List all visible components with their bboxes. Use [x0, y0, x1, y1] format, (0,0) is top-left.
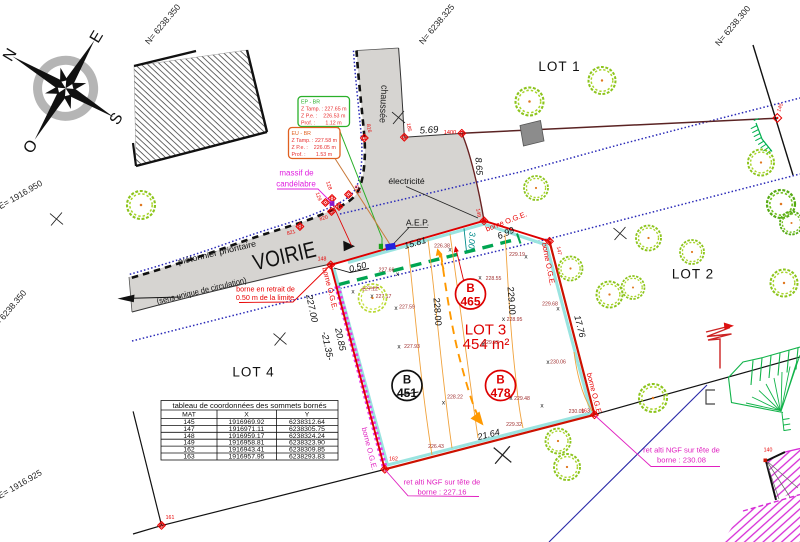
- svg-text:229.32: 229.32: [506, 422, 522, 428]
- svg-text:226.43: 226.43: [428, 444, 444, 450]
- svg-text:Z P.e. : 226.53 m: Z P.e. : 226.53 m: [301, 114, 346, 120]
- svg-text:B: B: [496, 375, 504, 387]
- svg-text:Prof. : 1.12 m: Prof. : 1.12 m: [301, 121, 342, 127]
- svg-text:229.00: 229.00: [506, 286, 518, 315]
- svg-text:B: B: [403, 375, 411, 387]
- svg-text:8.65: 8.65: [473, 157, 484, 176]
- svg-text:A.E.P.: A.E.P.: [406, 218, 429, 228]
- svg-text:borne : 230.08: borne : 230.08: [657, 456, 706, 465]
- svg-text:230.06: 230.06: [550, 360, 566, 366]
- svg-text:ret alti NGF sur tête de: ret alti NGF sur tête de: [643, 446, 720, 455]
- svg-text:électricité: électricité: [388, 176, 425, 186]
- svg-text:161: 161: [166, 515, 175, 521]
- svg-text:X: X: [244, 412, 249, 419]
- svg-text:tableau de coordonnées des som: tableau de coordonnées des sommets borné…: [172, 401, 326, 410]
- svg-text:229.53: 229.53: [483, 340, 499, 346]
- svg-text:140: 140: [764, 448, 773, 454]
- svg-text:Z Tamp. : 227.58 m: Z Tamp. : 227.58 m: [292, 138, 338, 144]
- svg-text:EU - BR: EU - BR: [292, 131, 312, 137]
- svg-text:LOT 1: LOT 1: [538, 59, 580, 74]
- svg-text:228.95: 228.95: [507, 317, 523, 323]
- svg-text:229.48: 229.48: [514, 396, 530, 402]
- svg-text:228.55: 228.55: [486, 276, 502, 282]
- svg-text:465: 465: [460, 295, 480, 309]
- svg-text:ret alti NGF sur tête de: ret alti NGF sur tête de: [404, 478, 481, 487]
- svg-text:1400: 1400: [444, 130, 456, 136]
- svg-text:0.50 m de la limite: 0.50 m de la limite: [236, 293, 294, 302]
- svg-text:6238293.83: 6238293.83: [289, 454, 325, 461]
- svg-text:MAT: MAT: [182, 412, 196, 419]
- svg-text:162: 162: [389, 457, 398, 463]
- svg-text:Y: Y: [305, 412, 310, 419]
- svg-text:EP - BR: EP - BR: [301, 100, 320, 106]
- svg-text:227.93: 227.93: [404, 344, 420, 350]
- svg-text:chaussée: chaussée: [377, 85, 390, 124]
- svg-text:Z P.e. : 226.05 m: Z P.e. : 226.05 m: [292, 145, 337, 151]
- svg-text:Z Tamp. : 227.65 m: Z Tamp. : 227.65 m: [301, 107, 347, 113]
- svg-text:LOT 2: LOT 2: [672, 267, 714, 282]
- svg-text:230.09: 230.09: [569, 409, 585, 415]
- svg-text:LOT 4: LOT 4: [232, 365, 274, 380]
- svg-text:228.00: 228.00: [432, 297, 444, 326]
- svg-text:1916957.95: 1916957.95: [229, 454, 265, 461]
- svg-text:B: B: [466, 283, 474, 295]
- svg-text:borne : 227.16: borne : 227.16: [418, 488, 467, 497]
- svg-text:5.69: 5.69: [419, 124, 439, 136]
- svg-text:candélabre: candélabre: [276, 180, 316, 189]
- svg-text:478: 478: [490, 386, 510, 400]
- svg-text:227.59: 227.59: [399, 305, 415, 311]
- svg-text:229.19: 229.19: [509, 252, 525, 258]
- svg-text:228.22: 228.22: [447, 395, 463, 401]
- svg-text:163: 163: [183, 454, 195, 461]
- svg-text:3.00: 3.00: [466, 232, 477, 250]
- svg-text:Prof. : 1.53 m: Prof. : 1.53 m: [292, 152, 333, 158]
- svg-text:148: 148: [318, 257, 327, 263]
- svg-text:227.66: 227.66: [379, 268, 395, 274]
- svg-text:massif de: massif de: [279, 169, 314, 178]
